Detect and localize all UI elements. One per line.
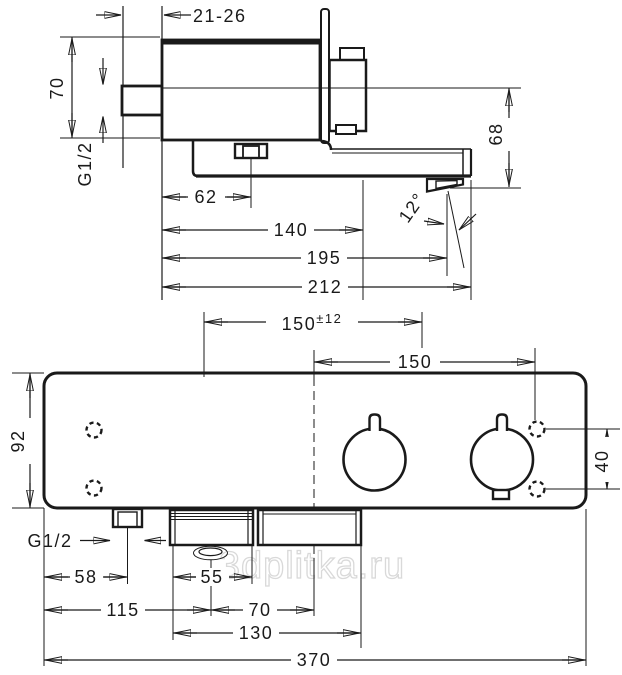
dim-outlet-drop-label: 68 bbox=[486, 122, 506, 145]
dim-nut-offset-label: 62 bbox=[194, 187, 217, 207]
safety-button bbox=[493, 490, 509, 499]
inlet-connector-side bbox=[122, 86, 162, 115]
dim-inlet-thread-front: G1/2 bbox=[27, 531, 166, 551]
dim-hose-center-offset-label: 115 bbox=[106, 600, 139, 620]
dim-hose-to-center: 70 bbox=[211, 600, 314, 620]
dim-body-height-front-label: 92 bbox=[8, 429, 28, 452]
dim-inlet-thread-side: G1/2 bbox=[75, 58, 103, 187]
mixer-dimension-drawing: 21-26 70 G1/2 bbox=[0, 0, 622, 675]
dim-spout-length-label: 212 bbox=[308, 277, 343, 297]
wall-plate bbox=[321, 9, 329, 143]
dim-hose-outlet-offset-label: 140 bbox=[274, 220, 309, 240]
dim-body-height-side-label: 70 bbox=[47, 76, 67, 99]
dim-total-width: 370 bbox=[44, 650, 586, 670]
side-view: 21-26 70 G1/2 bbox=[47, 6, 521, 300]
valve-bottom-tab bbox=[336, 125, 356, 134]
bottom-block bbox=[258, 510, 361, 545]
dim-hose-block-width-label: 55 bbox=[200, 567, 223, 587]
dim-hose-center-offset: 115 bbox=[44, 600, 211, 620]
mixer-body-side bbox=[162, 40, 320, 140]
dim-hose-to-center-label: 70 bbox=[248, 600, 271, 620]
dim-spout-outlet-offset-label: 195 bbox=[307, 248, 342, 268]
dim-wall-depth: 21-26 bbox=[96, 6, 247, 26]
dim-inlet-offset-label: 58 bbox=[74, 567, 97, 587]
dim-spout-length: 212 bbox=[162, 277, 471, 297]
dim-nut-offset: 62 bbox=[162, 187, 251, 207]
dim-inlet-thread-front-label: G1/2 bbox=[27, 531, 72, 551]
dim-spout-angle: 12° bbox=[395, 189, 476, 276]
technical-drawing-page: 21-26 70 G1/2 bbox=[0, 0, 622, 675]
dim-total-width-label: 370 bbox=[297, 650, 332, 670]
dim-hose-outlet-offset: 140 bbox=[162, 220, 363, 240]
front-view: 3dplitka.ru 92 bbox=[8, 309, 620, 670]
dim-body-height-front: 92 bbox=[8, 373, 44, 508]
dim-connection-spacing: 150±12 bbox=[204, 309, 422, 377]
spout-outlet bbox=[427, 179, 463, 192]
dim-hole-spacing-label: 40 bbox=[592, 449, 612, 472]
watermark: 3dplitka.ru bbox=[219, 545, 405, 587]
dim-handle-to-center-label: 150 bbox=[398, 352, 433, 372]
dim-bottom-block-width: 130 bbox=[173, 623, 361, 643]
dim-outlet-drop: 68 bbox=[450, 88, 521, 188]
dim-wall-depth-label: 21-26 bbox=[193, 6, 247, 26]
dim-inlet-offset: 58 bbox=[44, 567, 128, 587]
valve-body bbox=[330, 60, 367, 131]
dim-spout-outlet-offset: 195 bbox=[162, 248, 447, 268]
dim-inlet-thread-side-label: G1/2 bbox=[75, 141, 95, 186]
dim-bottom-block-width-label: 130 bbox=[239, 623, 274, 643]
